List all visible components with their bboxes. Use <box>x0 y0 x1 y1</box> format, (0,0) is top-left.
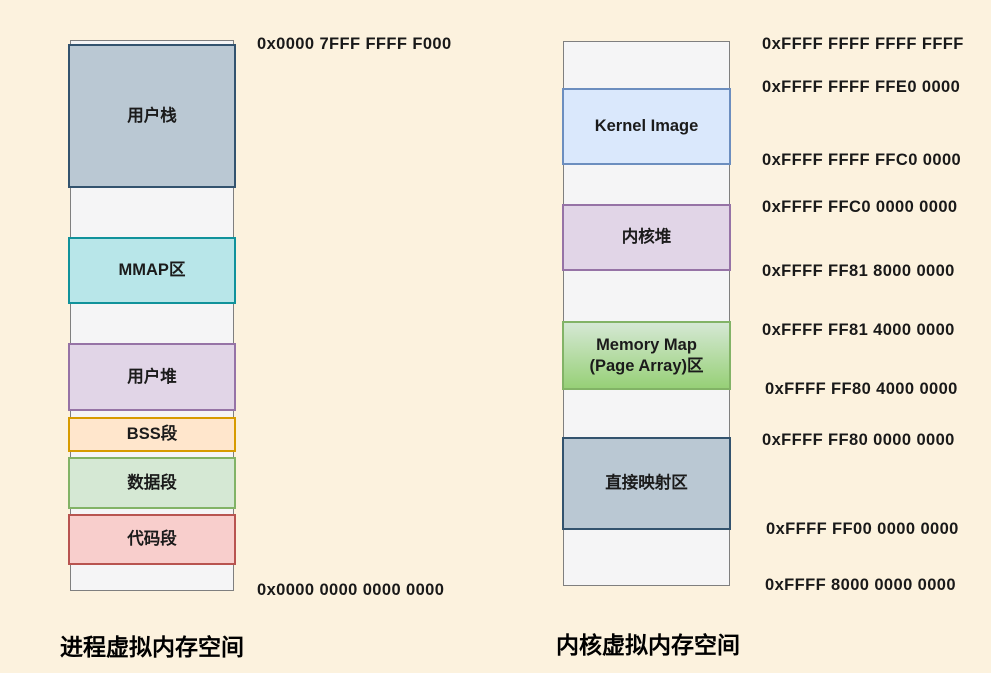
segment-user-stack: 用户栈 <box>68 44 236 188</box>
address-label-kernel: 0xFFFF FF00 0000 0000 <box>766 520 959 538</box>
segment-label: MMAP区 <box>119 260 186 281</box>
address-label-kernel: 0xFFFF FFFF FFE0 0000 <box>762 78 960 96</box>
address-label-kernel: 0xFFFF FF80 4000 0000 <box>765 380 958 398</box>
segment-label: 内核堆 <box>622 227 672 248</box>
kernel-space-title: 内核虚拟内存空间 <box>556 632 740 658</box>
address-label-kernel: 0xFFFF 8000 0000 0000 <box>765 576 956 594</box>
segment-bss: BSS段 <box>68 417 236 452</box>
segment-label: 代码段 <box>127 529 177 550</box>
address-label-kernel: 0xFFFF FFFF FFC0 0000 <box>762 151 961 169</box>
segment-label: 用户栈 <box>127 106 177 127</box>
segment-mmap: MMAP区 <box>68 237 236 304</box>
address-label-kernel: 0xFFFF FF81 4000 0000 <box>762 321 955 339</box>
kernel-vm-column: Kernel Image 内核堆 Memory Map (Page Array)… <box>563 41 730 586</box>
segment-label: 用户堆 <box>127 367 177 388</box>
segment-code: 代码段 <box>68 514 236 565</box>
address-label-kernel: 0xFFFF FF81 8000 0000 <box>762 262 955 280</box>
segment-label: BSS段 <box>127 424 177 445</box>
address-label-process-bottom: 0x0000 0000 0000 0000 <box>257 581 444 599</box>
segment-direct-mapping: 直接映射区 <box>562 437 731 530</box>
address-label-process-top: 0x0000 7FFF FFFF F000 <box>257 35 452 53</box>
memory-layout-diagram: 用户栈 MMAP区 用户堆 BSS段 数据段 代码段 0x0000 7FFF F… <box>0 0 991 673</box>
segment-label: 直接映射区 <box>605 473 688 494</box>
segment-user-heap: 用户堆 <box>68 343 236 411</box>
address-label-kernel: 0xFFFF FFFF FFFF FFFF <box>762 35 964 53</box>
segment-label: 数据段 <box>127 473 177 494</box>
address-label-kernel: 0xFFFF FF80 0000 0000 <box>762 431 955 449</box>
segment-kernel-image: Kernel Image <box>562 88 731 165</box>
process-space-title: 进程虚拟内存空间 <box>60 634 244 660</box>
segment-label: Memory Map (Page Array)区 <box>589 335 703 376</box>
process-vm-column: 用户栈 MMAP区 用户堆 BSS段 数据段 代码段 <box>70 40 234 591</box>
address-label-kernel: 0xFFFF FFC0 0000 0000 <box>762 198 957 216</box>
segment-label: Kernel Image <box>595 116 699 137</box>
segment-data: 数据段 <box>68 457 236 509</box>
segment-memory-map: Memory Map (Page Array)区 <box>562 321 731 390</box>
segment-kernel-heap: 内核堆 <box>562 204 731 271</box>
